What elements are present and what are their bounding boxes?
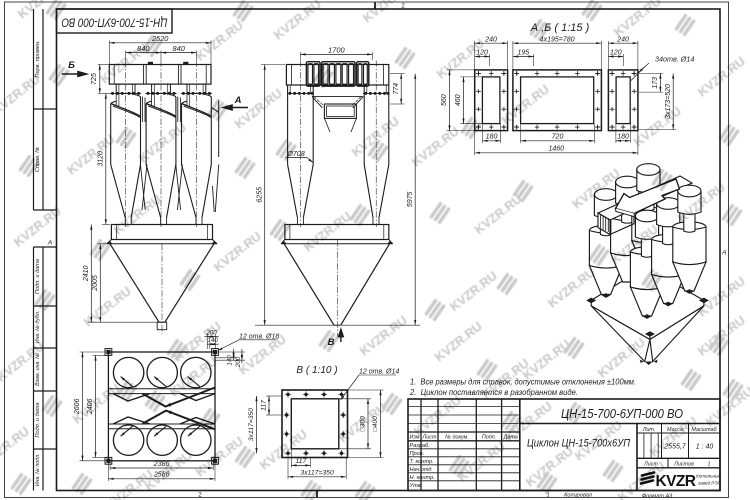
- svg-text:Пров.: Пров.: [410, 451, 425, 457]
- svg-text:774: 774: [393, 83, 400, 95]
- svg-text:Инв. № подл.: Инв. № подл.: [35, 453, 41, 486]
- svg-text:180: 180: [486, 134, 498, 141]
- svg-text:12 отв. Ø14: 12 отв. Ø14: [359, 369, 399, 376]
- svg-text:195: 195: [517, 50, 529, 57]
- svg-text:А: А: [47, 240, 52, 247]
- svg-text:460: 460: [455, 94, 462, 106]
- svg-text:240: 240: [484, 36, 497, 43]
- svg-text:Подп.: Подп.: [482, 435, 496, 441]
- svg-text:Разраб.: Разраб.: [410, 443, 430, 449]
- svg-text:34отв. Ø14: 34отв. Ø14: [655, 55, 694, 64]
- svg-text:Б: Б: [68, 60, 75, 71]
- svg-text:Листов: Листов: [673, 461, 694, 467]
- svg-text:Инв. № дубл.: Инв. № дубл.: [35, 311, 41, 344]
- svg-text:Т. контр.: Т. контр.: [410, 459, 434, 465]
- svg-text:4х195=780: 4х195=780: [540, 36, 575, 43]
- svg-text:ЦН-15-700-6УП-000 ВО: ЦН-15-700-6УП-000 ВО: [62, 15, 168, 29]
- svg-text:Формат А3: Формат А3: [642, 494, 673, 500]
- svg-text:1 : 40: 1 : 40: [696, 444, 714, 451]
- svg-text:1: 1: [708, 461, 711, 467]
- svg-text:2410: 2410: [83, 266, 90, 283]
- svg-text:Справ. №: Справ. №: [35, 147, 41, 172]
- svg-text:Н. контр.: Н. контр.: [410, 475, 435, 481]
- svg-text:Утв.: Утв.: [409, 483, 423, 489]
- svg-text:Подп. и дата: Подп. и дата: [35, 259, 41, 294]
- svg-text:Нач.отд: Нач.отд: [410, 467, 432, 473]
- svg-text:180: 180: [617, 134, 629, 141]
- svg-text:173: 173: [652, 77, 659, 89]
- svg-text:В ( 1:10 ): В ( 1:10 ): [296, 365, 337, 376]
- svg-text:3х117=350: 3х117=350: [248, 408, 255, 442]
- svg-text:Лит.: Лит.: [642, 427, 656, 433]
- svg-text:А: А: [234, 95, 242, 106]
- svg-text:3х117=350: 3х117=350: [300, 470, 334, 477]
- svg-text:120: 120: [610, 50, 622, 57]
- svg-text:завод РЭП: завод РЭП: [697, 481, 722, 486]
- svg-text:725: 725: [91, 73, 98, 85]
- svg-text:KVZR: KVZR: [656, 473, 696, 490]
- svg-text:2005: 2005: [92, 275, 99, 292]
- svg-text:560: 560: [441, 94, 448, 106]
- svg-text:А: А: [721, 250, 726, 257]
- svg-text:Котельный: Котельный: [696, 473, 721, 479]
- svg-text:720: 720: [552, 134, 564, 141]
- svg-text:Перв. примен.: Перв. примен.: [35, 40, 41, 77]
- svg-text:Копировал: Копировал: [564, 493, 593, 499]
- svg-text:117: 117: [261, 400, 268, 411]
- svg-text:117: 117: [295, 458, 306, 465]
- svg-text:140: 140: [227, 355, 234, 366]
- svg-text:840: 840: [173, 44, 186, 53]
- svg-text:№ докум.: № докум.: [445, 435, 469, 441]
- svg-text:6255: 6255: [256, 187, 263, 203]
- svg-text:1700: 1700: [328, 46, 345, 55]
- svg-text:1460: 1460: [549, 146, 565, 153]
- svg-text:Лист: Лист: [422, 435, 437, 441]
- svg-text:Подп. и дата: Подп. и дата: [35, 402, 41, 437]
- svg-text:5975: 5975: [407, 192, 414, 208]
